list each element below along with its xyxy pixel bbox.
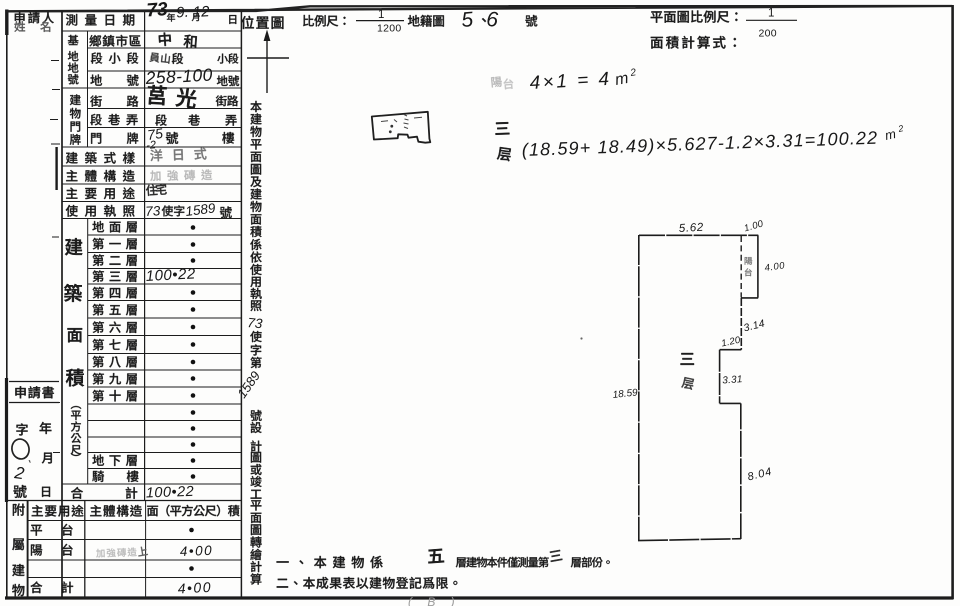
svg-text:73: 73 — [146, 0, 169, 21]
svg-text:258-100: 258-100 — [144, 65, 213, 89]
svg-text:4×1 = 4: 4×1 = 4 — [529, 69, 612, 94]
svg-text:73: 73 — [247, 315, 264, 331]
svg-text:5: 5 — [460, 8, 474, 32]
svg-text:4•00: 4•00 — [180, 543, 214, 559]
svg-text:73: 73 — [145, 203, 161, 219]
svg-text:4.00: 4.00 — [764, 260, 786, 274]
svg-text:100•22: 100•22 — [146, 484, 195, 502]
svg-text:( B ): ( B ) — [408, 595, 461, 606]
svg-text:9.: 9. — [176, 4, 190, 22]
svg-text:3.14: 3.14 — [742, 318, 766, 335]
svg-text:100•22: 100•22 — [145, 265, 196, 285]
svg-text:m: m — [884, 126, 898, 143]
svg-text:12: 12 — [192, 3, 210, 21]
svg-text:2: 2 — [629, 67, 638, 79]
svg-text:200: 200 — [759, 28, 777, 40]
svg-text:6: 6 — [486, 8, 499, 32]
svg-text:1: 1 — [378, 9, 384, 21]
svg-text:1.20: 1.20 — [720, 335, 742, 350]
svg-text:18.59: 18.59 — [612, 387, 638, 401]
svg-text:1589: 1589 — [234, 368, 263, 400]
svg-text:8.04: 8.04 — [746, 466, 773, 484]
svg-text:4•00: 4•00 — [177, 579, 212, 597]
svg-text:m: m — [614, 70, 630, 89]
svg-text:1.00: 1.00 — [743, 218, 765, 234]
svg-text:`: ` — [23, 458, 34, 476]
svg-text:1: 1 — [768, 8, 774, 20]
svg-text:1589: 1589 — [185, 200, 217, 219]
svg-text:2: 2 — [896, 123, 904, 134]
svg-text:5.62: 5.62 — [679, 222, 705, 235]
svg-text:(18.59+ 18.49)×5.627-1.2×3.31=: (18.59+ 18.49)×5.627-1.2×3.31=100.22 — [521, 128, 878, 160]
svg-text:3.31: 3.31 — [722, 374, 743, 386]
svg-text:1200: 1200 — [377, 23, 402, 35]
